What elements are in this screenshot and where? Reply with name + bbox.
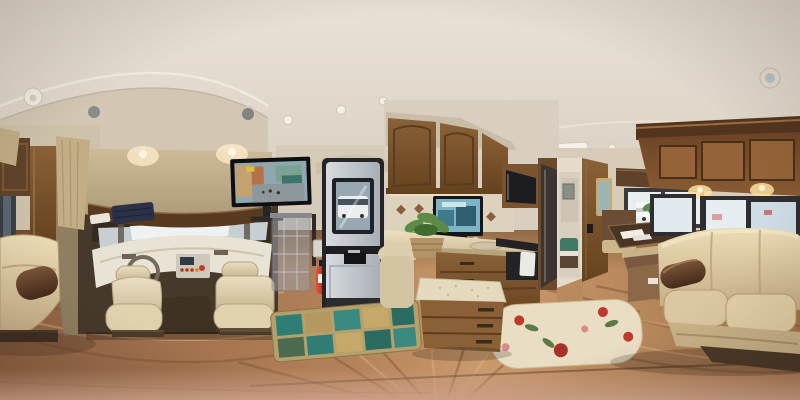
panorama-image <box>0 0 800 400</box>
vignette <box>0 0 800 400</box>
